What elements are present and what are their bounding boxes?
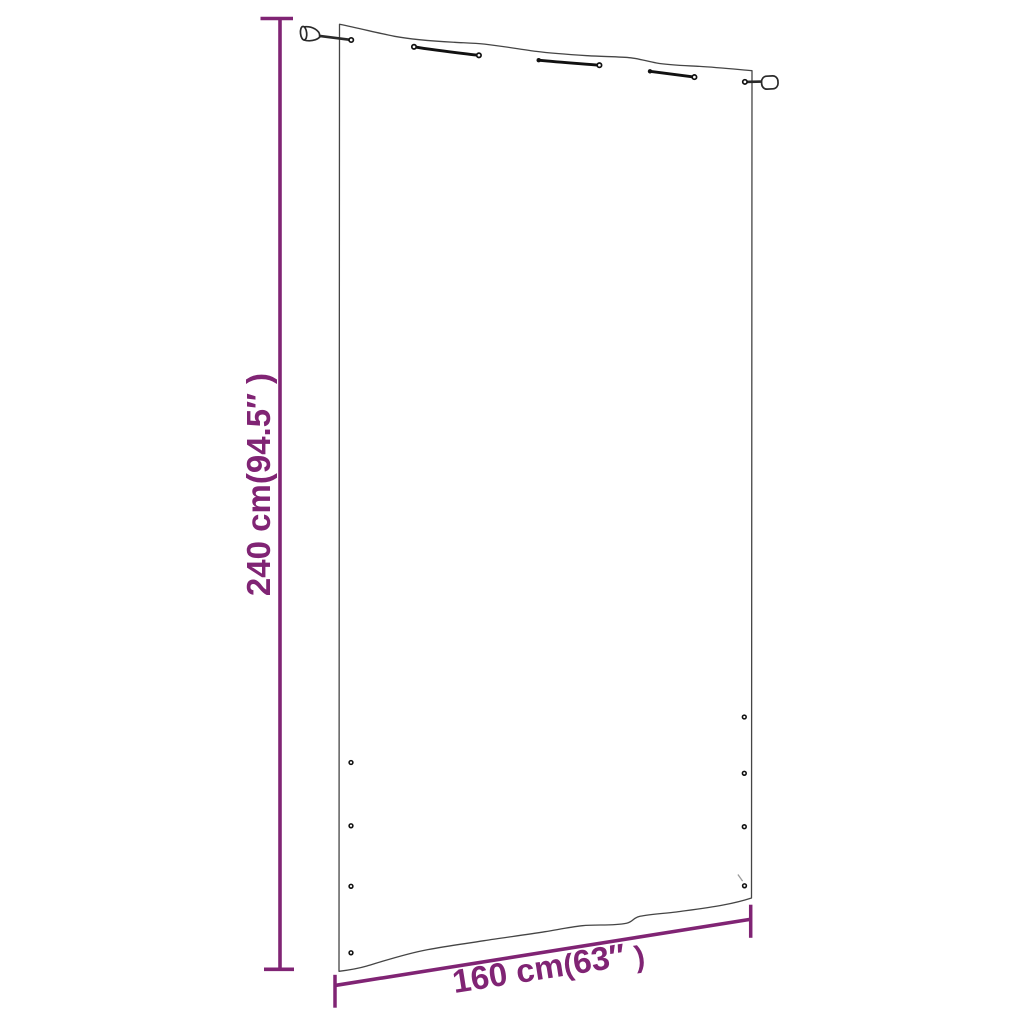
svg-text:240 cm(94.5″ ): 240 cm(94.5″ ) <box>240 373 277 596</box>
svg-text:160 cm(63″ ): 160 cm(63″ ) <box>450 933 647 1003</box>
